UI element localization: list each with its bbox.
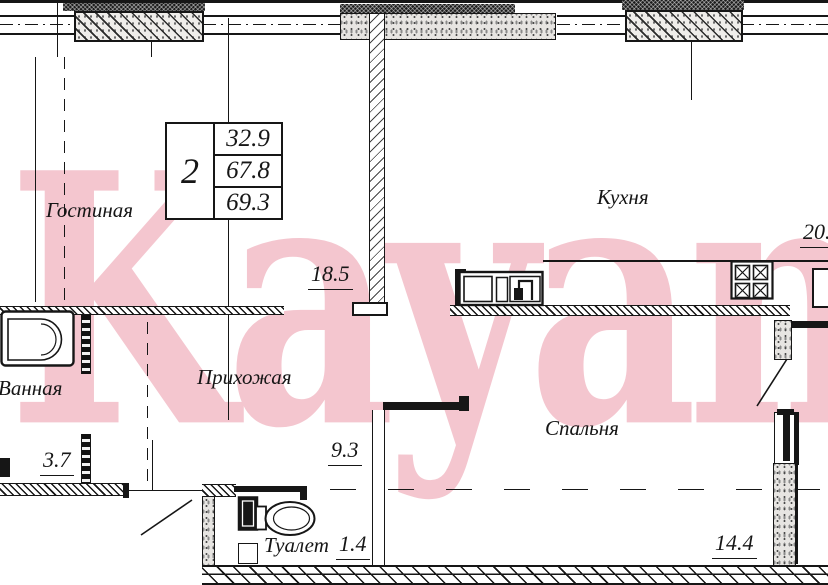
stove [732,262,773,299]
room-label-wc: Туалет [264,533,329,558]
area-value-wc: 1.4 [336,531,370,560]
kitchen-sink [460,272,543,305]
room-label-living: Гостиная [46,198,133,223]
area-value-bath: 3.7 [40,447,74,476]
floor-plan: Kayan 2 32.9 67.8 69.3 [0,0,828,585]
area-value-living: 18.5 [308,261,353,290]
bathtub [2,312,74,366]
room-label-hall: Прихожая [197,365,291,390]
room-label-bath: Ванная [0,376,62,401]
fixtures-layer [0,0,828,585]
room-label-kitchen: Кухня [597,185,649,210]
area-value-kitchen: 20.5 [800,219,828,248]
door-swing-bedroom [757,359,787,406]
toilet [239,497,315,535]
area-value-bedroom: 14.4 [712,530,757,559]
room-label-bedroom: Спальня [545,416,619,441]
area-value-hall: 9.3 [328,437,362,466]
door-swing-entry [141,500,192,535]
